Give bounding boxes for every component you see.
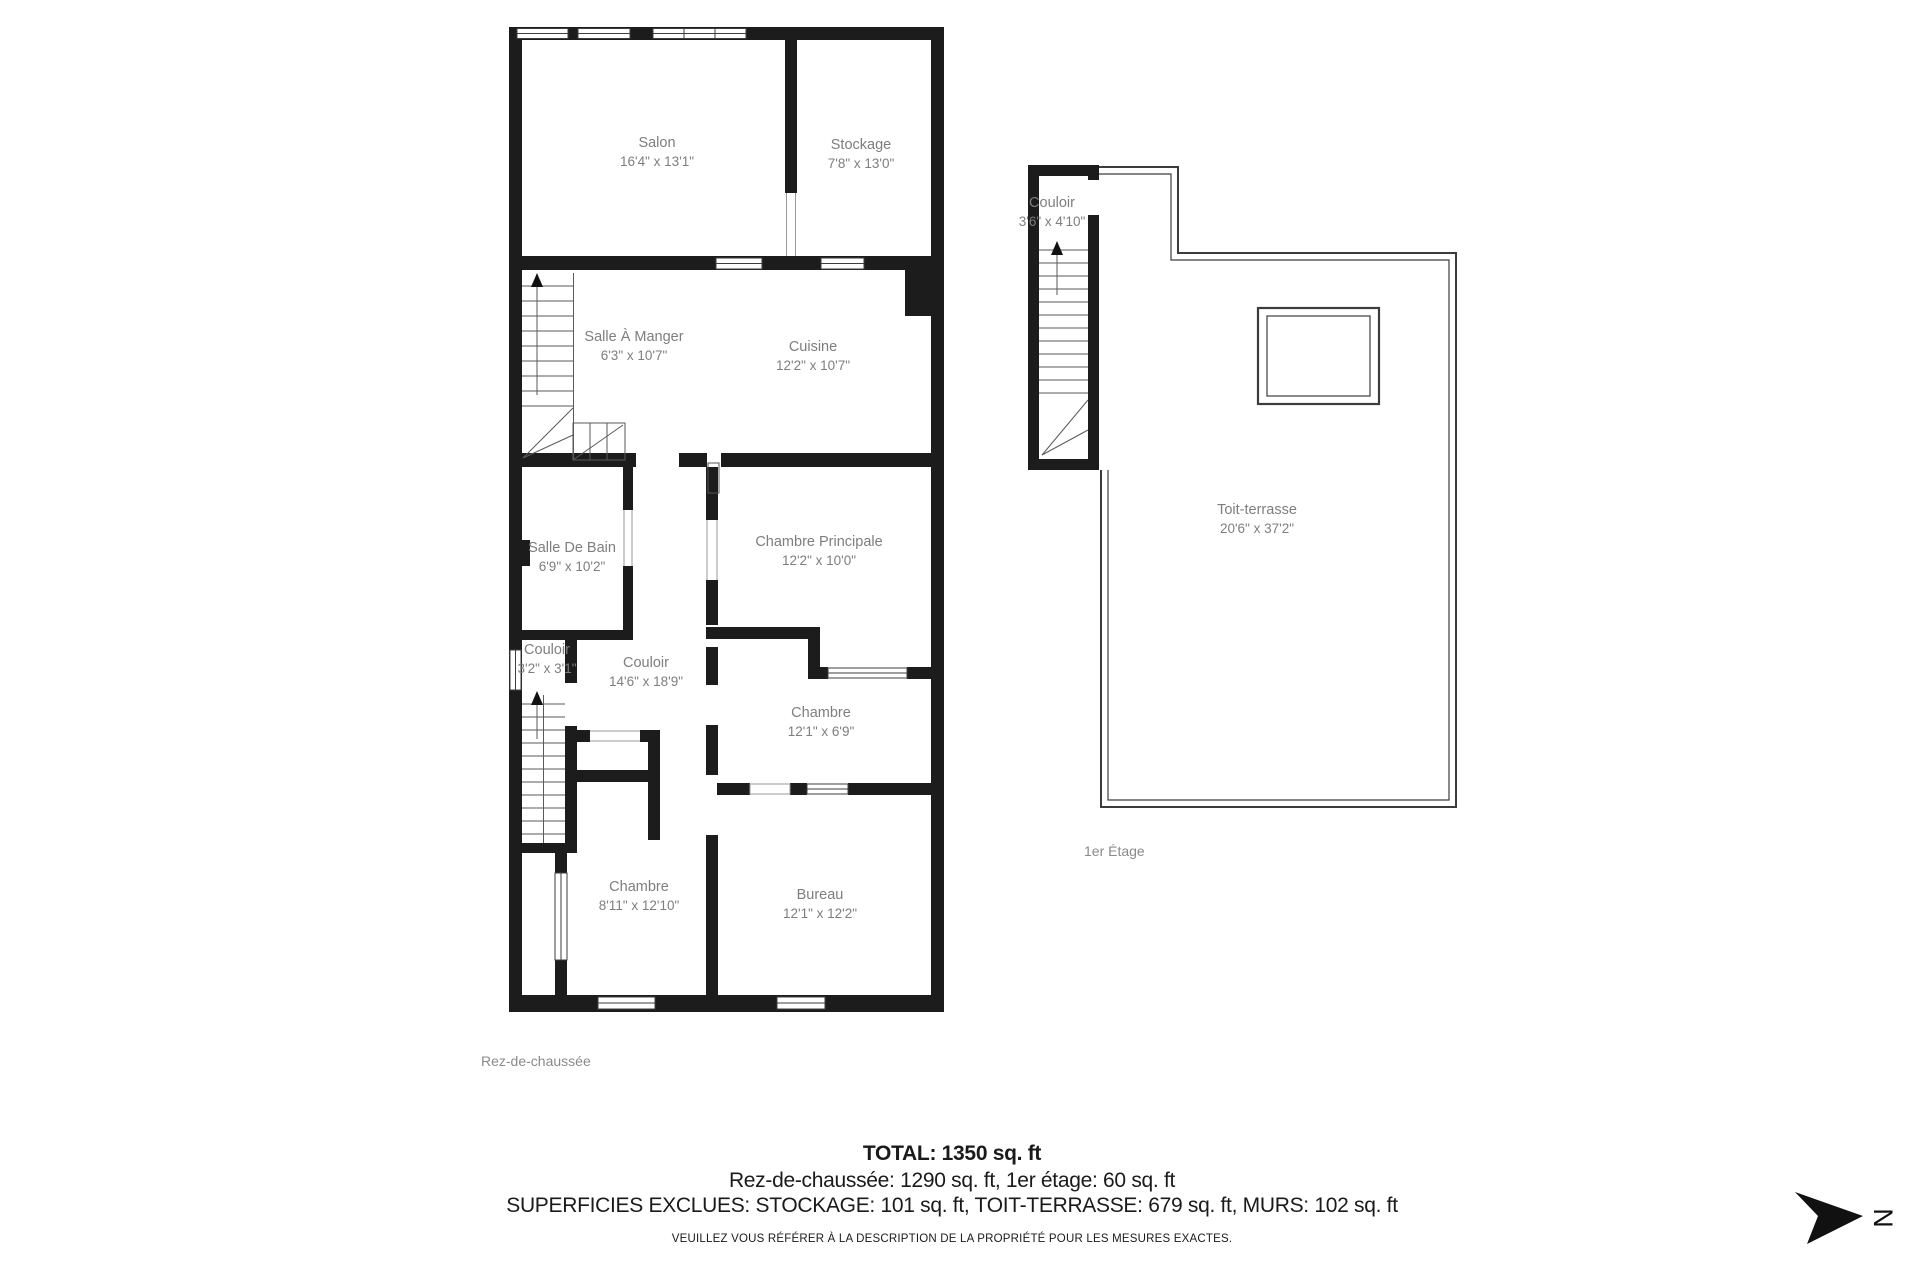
ground-floor-plan	[509, 27, 944, 1018]
room-name: Chambre	[788, 704, 855, 723]
room-dimensions: 6'3" x 10'7"	[584, 347, 683, 365]
stairs-upper	[522, 273, 625, 460]
room-label-chambre-2: Chambre 8'11" x 12'10"	[599, 878, 680, 915]
room-label-couloir-petit: Couloir 3'2" x 3'1"	[517, 641, 576, 678]
first-floor-plan	[1028, 165, 1458, 810]
stairs-up-arrow-icon	[531, 273, 543, 287]
floorplan-page: Salon 16'4" x 13'1" Stockage 7'8" x 13'0…	[0, 0, 1920, 1279]
skylight-icon	[1258, 308, 1379, 404]
room-name: Chambre	[599, 878, 680, 897]
room-name: Salle À Manger	[584, 328, 683, 347]
room-dimensions: 12'1" x 6'9"	[788, 723, 855, 741]
room-name: Salon	[620, 134, 694, 153]
room-label-chambre-1: Chambre 12'1" x 6'9"	[788, 704, 855, 741]
room-label-couloir-etage: Couloir 3'6" x 4'10"	[1019, 194, 1086, 231]
door-jambs	[590, 193, 796, 794]
terrace-outline	[1099, 167, 1456, 807]
excluded-areas-text: SUPERFICIES EXCLUES: STOCKAGE: 101 sq. f…	[0, 1194, 1904, 1218]
first-floor-caption: 1er Étage	[1084, 843, 1145, 859]
room-dimensions: 16'4" x 13'1"	[620, 153, 694, 171]
disclaimer-text: VEUILLEZ VOUS RÉFÉRER À LA DESCRIPTION D…	[0, 1233, 1904, 1245]
room-label-couloir: Couloir 14'6" x 18'9"	[609, 654, 683, 691]
ground-floor-caption: Rez-de-chaussée	[481, 1053, 591, 1069]
room-name: Couloir	[1019, 194, 1086, 213]
room-name: Stockage	[828, 136, 895, 155]
room-dimensions: 12'2" x 10'7"	[776, 357, 850, 375]
north-letter: N	[1868, 1208, 1898, 1228]
room-label-bureau: Bureau 12'1" x 12'2"	[783, 886, 857, 923]
room-label-stockage: Stockage 7'8" x 13'0"	[828, 136, 895, 173]
room-name: Toit-terrasse	[1217, 501, 1297, 520]
stairs	[1039, 241, 1088, 455]
stairs-up-arrow-icon	[1051, 241, 1063, 255]
room-label-salon: Salon 16'4" x 13'1"	[620, 134, 694, 171]
floor-areas-text: Rez-de-chaussée: 1290 sq. ft, 1er étage:…	[0, 1169, 1904, 1193]
room-label-salle-de-bain: Salle De Bain 6'9" x 10'2"	[528, 539, 616, 576]
room-dimensions: 3'6" x 4'10"	[1019, 213, 1086, 231]
north-arrow-icon: N	[1795, 1186, 1905, 1252]
room-dimensions: 8'11" x 12'10"	[599, 897, 680, 915]
room-dimensions: 14'6" x 18'9"	[609, 673, 683, 691]
room-label-cuisine: Cuisine 12'2" x 10'7"	[776, 338, 850, 375]
room-dimensions: 7'8" x 13'0"	[828, 155, 895, 173]
room-name: Chambre Principale	[755, 533, 882, 552]
room-name: Salle De Bain	[528, 539, 616, 558]
room-dimensions: 12'1" x 12'2"	[783, 905, 857, 923]
room-dimensions: 6'9" x 10'2"	[528, 558, 616, 576]
room-name: Couloir	[609, 654, 683, 673]
room-name: Bureau	[783, 886, 857, 905]
room-dimensions: 3'2" x 3'1"	[517, 660, 576, 678]
stairs-up-arrow-icon	[531, 691, 543, 705]
stairs-lower	[522, 691, 565, 843]
room-label-toit-terrasse: Toit-terrasse 20'6" x 37'2"	[1217, 501, 1297, 538]
room-label-chambre-principale: Chambre Principale 12'2" x 10'0"	[755, 533, 882, 570]
room-label-salle-a-manger: Salle À Manger 6'3" x 10'7"	[584, 328, 683, 365]
room-dimensions: 12'2" x 10'0"	[755, 552, 882, 570]
room-dimensions: 20'6" x 37'2"	[1217, 520, 1297, 538]
room-name: Couloir	[517, 641, 576, 660]
walls	[509, 27, 944, 1012]
room-name: Cuisine	[776, 338, 850, 357]
total-area-text: TOTAL: 1350 sq. ft	[0, 1142, 1904, 1166]
